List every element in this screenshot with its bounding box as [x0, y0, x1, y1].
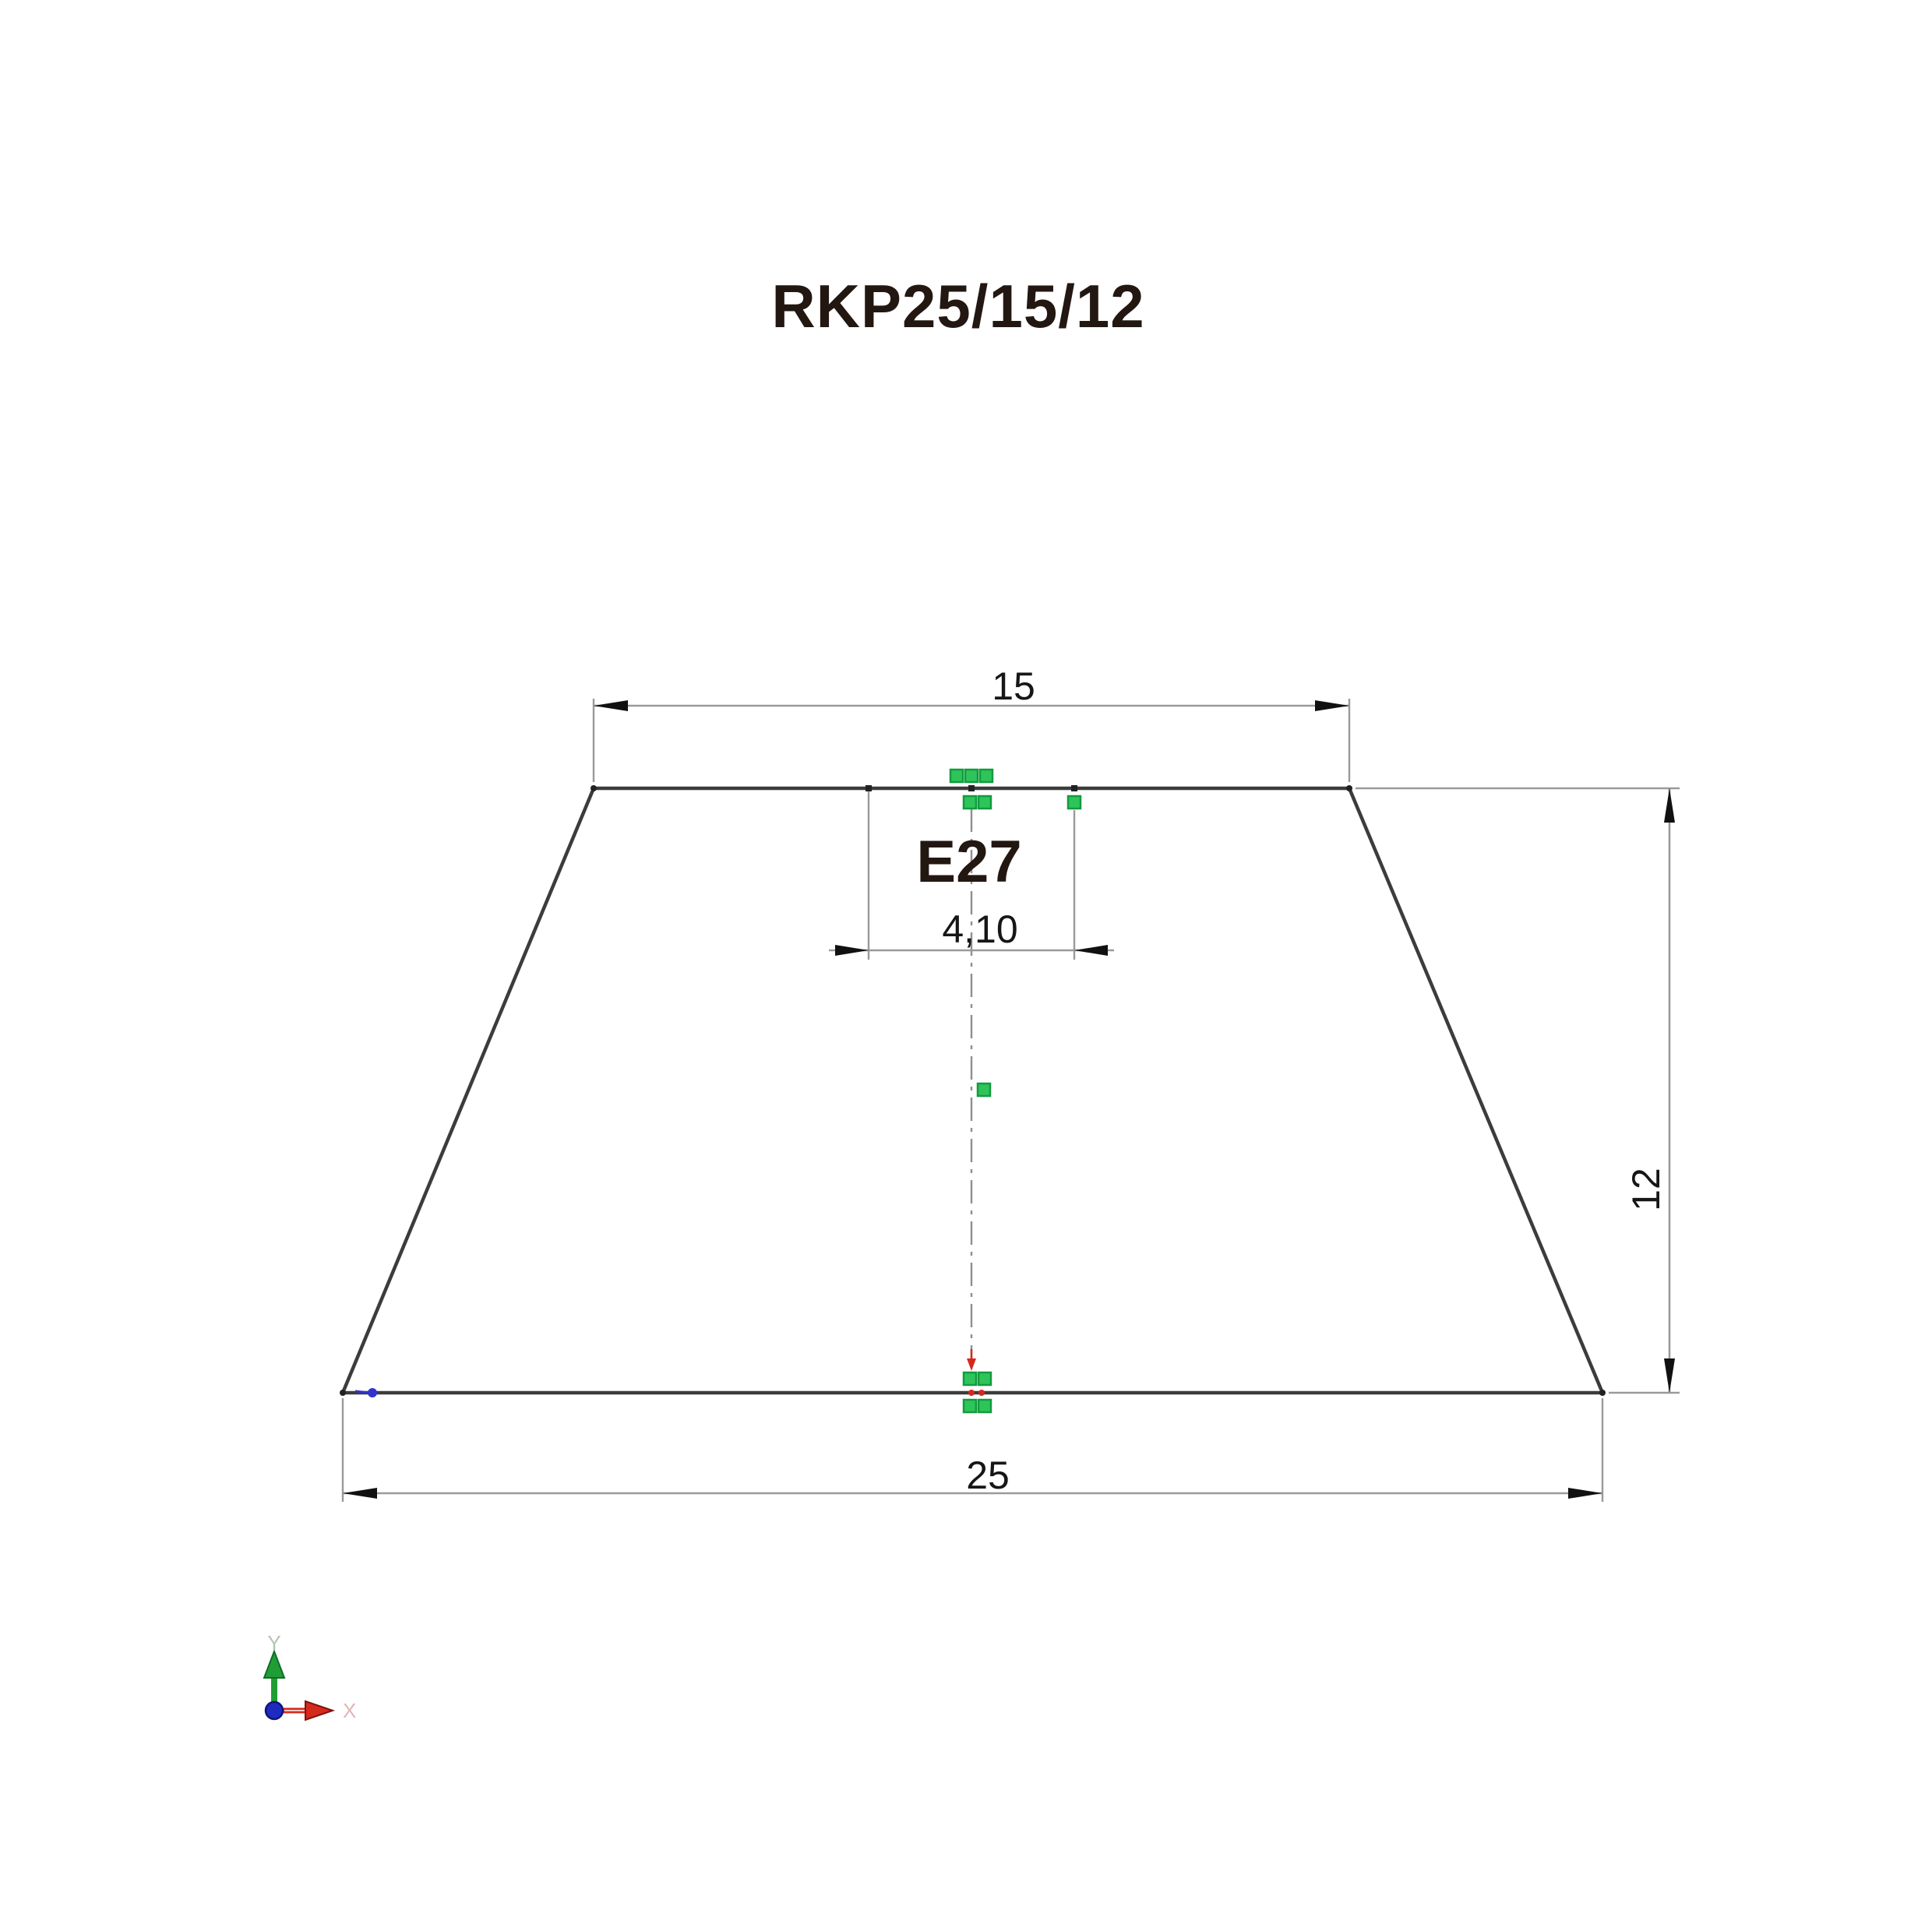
- dimension-arrow-left: [835, 945, 869, 956]
- endpoint-node: [866, 785, 872, 791]
- origin-dot-icon: [266, 1702, 283, 1719]
- dimension-arrow-right: [1315, 700, 1349, 711]
- dimension-bottom-width: 25: [343, 1398, 1602, 1502]
- red-node: [978, 1390, 985, 1396]
- grip-marker[interactable]: [964, 796, 976, 809]
- dimension-top-width: 15: [594, 664, 1349, 782]
- vertex-highlight-dot: [368, 1388, 377, 1397]
- corner-node: [340, 1390, 346, 1396]
- dimension-arrow-top: [1664, 788, 1675, 823]
- y-axis-label: Y: [267, 1631, 280, 1654]
- x-axis-label: X: [343, 1699, 356, 1722]
- cad-viewport: RKP25/15/12 15 25: [0, 0, 1932, 1931]
- endpoint-node: [1071, 785, 1077, 791]
- grip-marker[interactable]: [965, 770, 978, 782]
- endpoint-node: [968, 785, 975, 791]
- corner-node: [591, 785, 597, 791]
- drawing-title: RKP25/15/12: [771, 272, 1144, 340]
- socket-label: E27: [916, 829, 1021, 895]
- grip-marker[interactable]: [1068, 796, 1081, 809]
- red-node: [968, 1390, 975, 1396]
- grip-marker[interactable]: [964, 1372, 976, 1385]
- grip-marker[interactable]: [978, 1084, 990, 1096]
- y-axis-arrow-icon: [264, 1651, 284, 1678]
- dimension-arrow-left: [343, 1488, 377, 1499]
- dimension-label-socket-hole: 4,10: [942, 907, 1017, 951]
- grip-marker[interactable]: [964, 1400, 976, 1412]
- vertex-highlight-line: [355, 1391, 369, 1393]
- dimension-label-height: 12: [1624, 1168, 1668, 1211]
- grip-marker[interactable]: [978, 796, 991, 809]
- dimension-arrow-bottom: [1664, 1358, 1675, 1393]
- dimension-height: 12: [1356, 788, 1680, 1393]
- ucs-axis-triad: Y X: [264, 1631, 356, 1722]
- grip-marker[interactable]: [980, 770, 992, 782]
- centerline-arrow: [967, 1358, 976, 1371]
- dimension-arrow-right: [1568, 1488, 1602, 1499]
- dimension-arrow-right: [1074, 945, 1108, 956]
- dimension-arrow-left: [594, 700, 628, 711]
- grip-marker[interactable]: [978, 1400, 991, 1412]
- corner-node: [1599, 1390, 1606, 1396]
- x-axis-arrow-icon: [305, 1701, 333, 1720]
- dimension-label-bottom-width: 25: [966, 1454, 1010, 1497]
- grip-marker[interactable]: [978, 1372, 991, 1385]
- cad-drawing: RKP25/15/12 15 25: [0, 0, 1932, 1931]
- corner-node: [1346, 785, 1352, 791]
- grip-marker[interactable]: [950, 770, 963, 782]
- dimension-label-top-width: 15: [992, 664, 1035, 708]
